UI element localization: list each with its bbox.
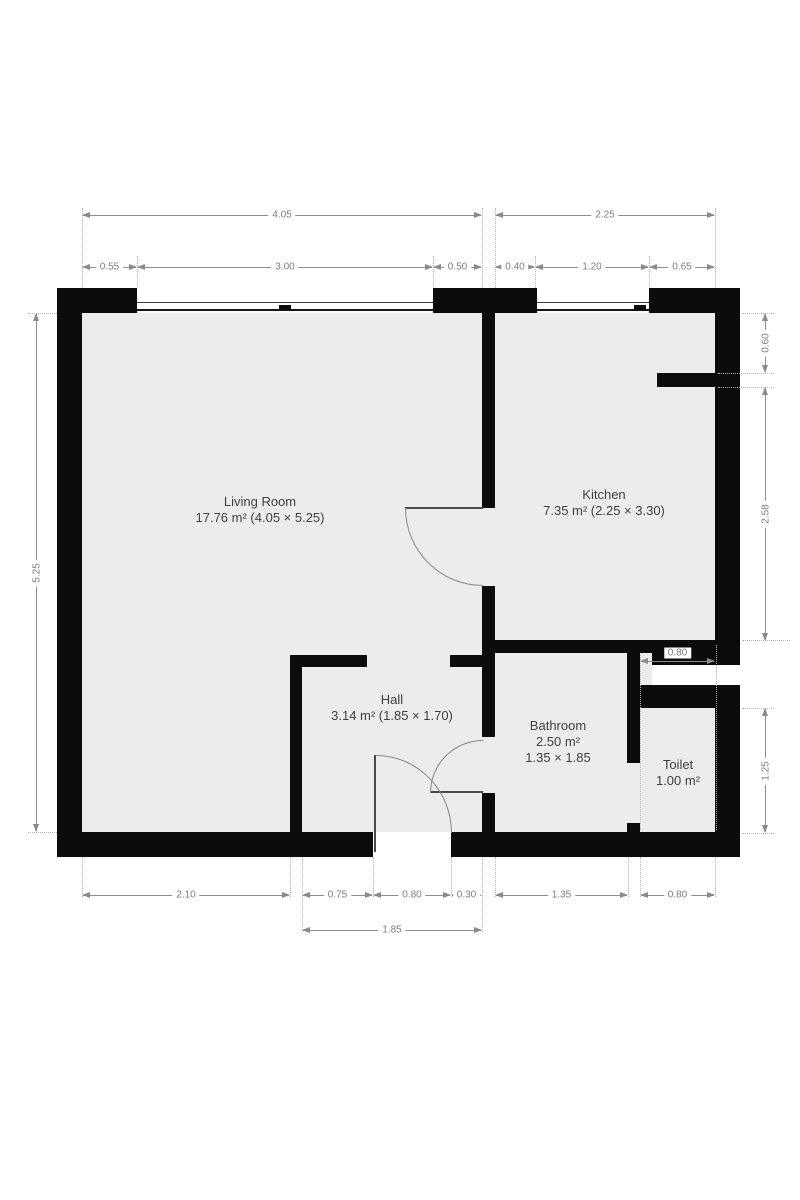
extension-line — [742, 708, 774, 709]
extension-line — [495, 857, 496, 897]
dim-right-kitchen-lower: 2.58 — [760, 387, 771, 641]
dim-top-seg-6: 0.65 — [649, 262, 715, 273]
extension-line — [373, 857, 374, 897]
room-detail: 17.76 m² (4.05 × 5.25) — [196, 510, 325, 526]
room-label-toilet: Toilet 1.00 m² — [656, 757, 700, 789]
dim-bottom-seg-6: 0.80 — [640, 890, 715, 901]
dim-top-living-width: 4.05 — [82, 210, 482, 221]
wall-bathroom-toilet — [627, 653, 640, 763]
wall-kitchen-bottom — [482, 640, 652, 653]
extension-line — [495, 208, 496, 288]
extension-line — [715, 208, 716, 288]
extension-line — [742, 313, 774, 314]
wall-recess — [652, 665, 740, 685]
extension-line — [433, 256, 434, 288]
entrance-opening — [373, 832, 451, 857]
dim-top-seg-4: 0.40 — [495, 262, 535, 273]
dim-top-seg-3: 0.50 — [433, 262, 482, 273]
dim-top-seg-2: 3.00 — [137, 262, 433, 273]
extension-line — [640, 857, 641, 897]
wall-toilet-top — [640, 685, 740, 708]
extension-line — [482, 208, 483, 288]
wall-hall-left — [290, 655, 302, 832]
extension-line — [718, 387, 774, 388]
dim-bottom-seg-3: 0.80 — [373, 890, 451, 901]
extension-line — [628, 857, 629, 897]
floor-plan: Living Room 17.76 m² (4.05 × 5.25) Kitch… — [0, 0, 800, 1200]
extension-line — [82, 208, 83, 288]
dim-bottom-hall-width: 1.85 — [302, 925, 482, 936]
wall-kitchen-right-stub — [657, 373, 715, 387]
room-name: Bathroom — [525, 718, 590, 734]
extension-line — [302, 857, 303, 932]
dim-bottom-seg-1: 2.10 — [82, 890, 290, 901]
room-name: Kitchen — [543, 487, 665, 503]
wall-living-kitchen-lower — [482, 586, 495, 737]
dim-top-seg-5: 1.20 — [535, 262, 649, 273]
extension-line — [649, 256, 650, 288]
extension-line — [535, 256, 536, 288]
room-name: Hall — [331, 692, 453, 708]
extension-line — [82, 857, 83, 897]
extension-line — [716, 645, 717, 830]
wall-hall-top-right — [450, 655, 482, 667]
room-name: Living Room — [196, 494, 325, 510]
room-label-bathroom: Bathroom 2.50 m² 1.35 × 1.85 — [525, 718, 590, 766]
extension-line — [640, 655, 641, 830]
wall-exterior-left — [57, 288, 82, 857]
dim-toilet-width: 0.80 — [640, 656, 715, 667]
window-kitchen — [537, 288, 649, 313]
room-label-kitchen: Kitchen 7.35 m² (2.25 × 3.30) — [543, 487, 665, 519]
extension-line — [28, 313, 57, 314]
room-area: 1.00 m² — [656, 773, 700, 789]
wall-hall-bathroom-lower — [482, 793, 495, 832]
wall-hall-top-left — [290, 655, 367, 667]
room-name: Toilet — [656, 757, 700, 773]
dim-left-height: 5.25 — [31, 313, 42, 832]
room-label-living: Living Room 17.76 m² (4.05 × 5.25) — [196, 494, 325, 526]
dim-top-kitchen-width: 2.25 — [495, 210, 715, 221]
dim-bottom-seg-2: 0.75 — [302, 890, 373, 901]
extension-line — [137, 256, 138, 288]
extension-line — [482, 857, 483, 932]
dim-bottom-seg-4: 0.30 — [451, 890, 482, 901]
extension-line — [718, 373, 774, 374]
room-detail: 3.14 m² (1.85 × 1.70) — [331, 708, 453, 724]
room-size: 1.35 × 1.85 — [525, 750, 590, 766]
extension-line — [28, 832, 57, 833]
dim-right-toilet-height: 1.25 — [760, 708, 771, 833]
room-area: 2.50 m² — [525, 734, 590, 750]
floor-area — [82, 313, 715, 832]
extension-line — [290, 857, 291, 897]
extension-line — [451, 857, 452, 897]
extension-line — [715, 857, 716, 897]
room-detail: 7.35 m² (2.25 × 3.30) — [543, 503, 665, 519]
wall-bathroom-toilet-stub — [627, 823, 640, 832]
room-label-hall: Hall 3.14 m² (1.85 × 1.70) — [331, 692, 453, 724]
dim-bottom-seg-5: 1.35 — [495, 890, 628, 901]
dim-top-seg-1: 0.55 — [82, 262, 137, 273]
extension-line — [742, 833, 774, 834]
window-living-room — [137, 288, 433, 313]
dim-right-kitchen-upper: 0.60 — [760, 313, 771, 373]
extension-line — [742, 640, 790, 641]
wall-living-kitchen-upper — [482, 313, 495, 508]
